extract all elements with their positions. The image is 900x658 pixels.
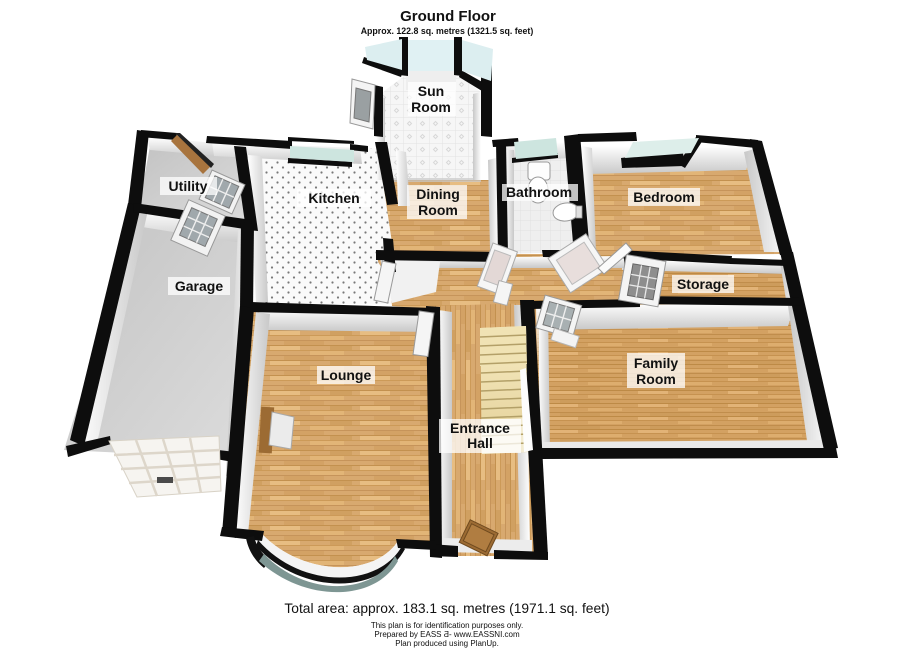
svg-text:This plan is for identificatio: This plan is for identification purposes… [371, 621, 523, 630]
svg-text:Storage: Storage [677, 276, 729, 292]
svg-text:Prepared by EASS Ƌ- www.EASSN: Prepared by EASS Ƌ- www.EASSNI.com [374, 630, 520, 639]
svg-text:Family: Family [634, 355, 679, 371]
svg-text:Ground Floor: Ground Floor [400, 8, 496, 25]
svg-text:Bedroom: Bedroom [633, 189, 694, 205]
svg-text:Sun: Sun [418, 83, 444, 99]
svg-text:Entrance: Entrance [450, 420, 510, 436]
svg-text:Kitchen: Kitchen [308, 190, 359, 206]
svg-text:Lounge: Lounge [321, 367, 372, 383]
svg-text:Garage: Garage [175, 278, 223, 294]
svg-text:Room: Room [411, 99, 451, 115]
svg-text:Dining: Dining [416, 186, 460, 202]
svg-text:Room: Room [418, 202, 458, 218]
svg-text:Bathroom: Bathroom [506, 184, 572, 200]
svg-text:Room: Room [636, 371, 676, 387]
svg-text:Utility: Utility [169, 178, 208, 194]
svg-text:Plan produced using PlanUp.: Plan produced using PlanUp. [395, 639, 499, 648]
svg-text:Approx. 122.8 sq. metres (1321: Approx. 122.8 sq. metres (1321.5 sq. fee… [361, 26, 534, 36]
svg-text:Total area: approx. 183.1 sq.: Total area: approx. 183.1 sq. metres (19… [284, 601, 609, 616]
svg-text:Hall: Hall [467, 435, 493, 451]
